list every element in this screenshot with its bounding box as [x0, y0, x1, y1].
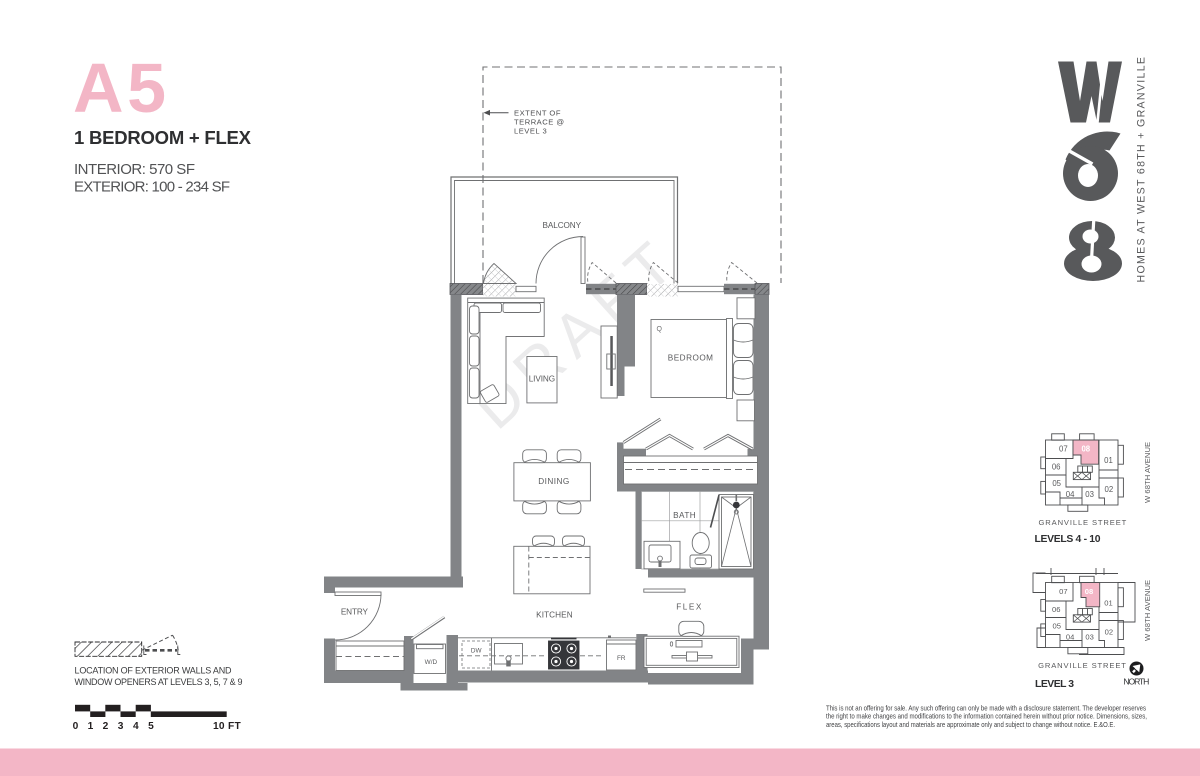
- svg-text:06: 06: [1052, 463, 1061, 472]
- svg-text:BALCONY: BALCONY: [543, 221, 582, 230]
- svg-text:areas, specifications layout a: areas, specifications layout and materia…: [826, 720, 1115, 729]
- svg-text:05: 05: [1052, 479, 1061, 488]
- svg-text:03: 03: [1085, 490, 1094, 499]
- svg-text:NORTH: NORTH: [1123, 677, 1149, 687]
- svg-text:EXTENT OF: EXTENT OF: [514, 109, 561, 118]
- svg-text:LEVEL 3: LEVEL 3: [514, 127, 547, 136]
- svg-text:FR: FR: [617, 655, 626, 662]
- svg-text:LOCATION OF EXTERIOR WALLS AND: LOCATION OF EXTERIOR WALLS AND: [75, 666, 233, 676]
- svg-text:DINING: DINING: [538, 477, 569, 486]
- svg-text:ENTRY: ENTRY: [341, 608, 369, 617]
- svg-text:HOMES AT WEST 68TH + GRANVILLE: HOMES AT WEST 68TH + GRANVILLE: [1136, 57, 1148, 283]
- svg-text:5: 5: [148, 721, 154, 732]
- svg-text:07: 07: [1059, 445, 1068, 454]
- svg-text:BEDROOM: BEDROOM: [668, 353, 713, 362]
- svg-text:03: 03: [1085, 633, 1093, 642]
- svg-text:WINDOW OPENERS AT LEVELS 3, 5,: WINDOW OPENERS AT LEVELS 3, 5, 7 & 9: [75, 677, 243, 687]
- svg-text:07: 07: [1059, 587, 1067, 596]
- svg-text:10 FT: 10 FT: [213, 721, 242, 732]
- svg-text:GRANVILLE STREET: GRANVILLE STREET: [1039, 518, 1128, 527]
- svg-text:01: 01: [1104, 599, 1112, 608]
- svg-text:BATH: BATH: [673, 511, 696, 520]
- svg-text:06: 06: [1052, 605, 1060, 614]
- svg-text:DW: DW: [471, 647, 483, 654]
- svg-text:0: 0: [73, 721, 79, 732]
- svg-text:05: 05: [1052, 622, 1060, 631]
- svg-text:EXTERIOR: 100 - 234 SF: EXTERIOR: 100 - 234 SF: [74, 179, 230, 196]
- svg-text:KITCHEN: KITCHEN: [536, 611, 573, 620]
- svg-text:02: 02: [1105, 628, 1113, 637]
- svg-text:04: 04: [1066, 633, 1074, 642]
- svg-text:W 68TH AVENUE: W 68TH AVENUE: [1143, 441, 1152, 503]
- svg-text:08: 08: [1081, 445, 1090, 454]
- svg-text:W/D: W/D: [425, 659, 438, 666]
- svg-text:01: 01: [1104, 456, 1113, 465]
- svg-text:3: 3: [118, 721, 124, 732]
- svg-text:Q: Q: [657, 326, 663, 333]
- svg-text:2: 2: [103, 721, 109, 732]
- svg-text:FLEX: FLEX: [676, 603, 702, 612]
- svg-text:02: 02: [1105, 485, 1114, 494]
- svg-text:W 68TH AVENUE: W 68TH AVENUE: [1143, 579, 1152, 641]
- svg-text:INTERIOR: 570 SF: INTERIOR: 570 SF: [74, 161, 195, 178]
- svg-text:1 BEDROOM + FLEX: 1 BEDROOM + FLEX: [74, 127, 252, 148]
- svg-text:1: 1: [88, 721, 94, 732]
- svg-text:GRANVILLE STREET: GRANVILLE STREET: [1038, 661, 1127, 670]
- svg-text:A5: A5: [73, 49, 166, 127]
- svg-text:04: 04: [1066, 490, 1075, 499]
- svg-text:LIVING: LIVING: [529, 375, 555, 384]
- svg-text:TERRACE @: TERRACE @: [514, 118, 565, 127]
- svg-text:LEVEL 3: LEVEL 3: [1035, 679, 1074, 690]
- svg-text:LEVELS 4 - 10: LEVELS 4 - 10: [1035, 534, 1101, 545]
- svg-text:08: 08: [1085, 587, 1093, 596]
- svg-text:4: 4: [133, 721, 139, 732]
